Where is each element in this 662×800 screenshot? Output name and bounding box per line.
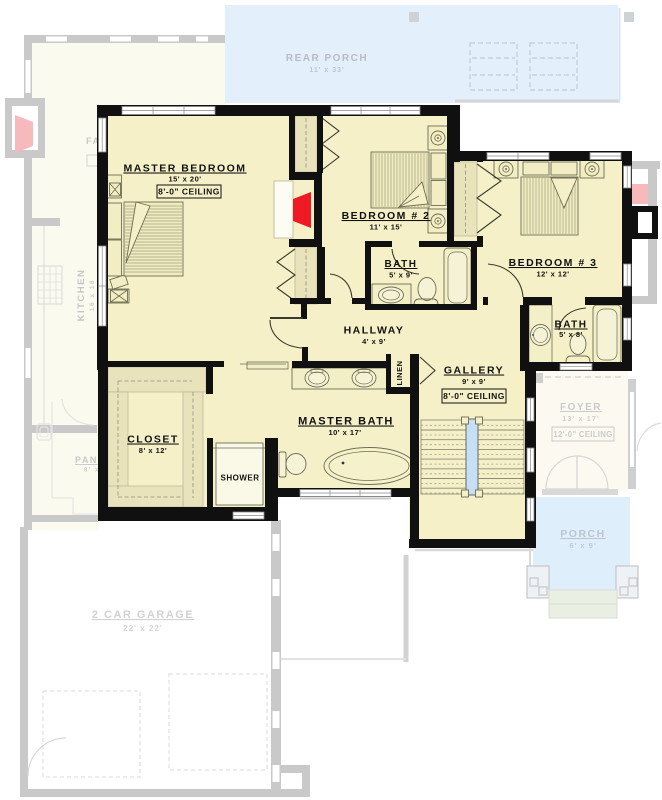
svg-text:CLOSET: CLOSET bbox=[127, 434, 179, 446]
svg-text:LINEN: LINEN bbox=[395, 361, 404, 386]
svg-text:8' x 12': 8' x 12' bbox=[139, 446, 167, 455]
svg-text:11' x 33': 11' x 33' bbox=[309, 67, 344, 74]
svg-text:PAN: PAN bbox=[75, 455, 98, 465]
svg-text:8'-0" CEILING: 8'-0" CEILING bbox=[443, 391, 505, 401]
svg-text:16 x 18: 16 x 18 bbox=[89, 279, 96, 311]
svg-text:KITCHEN: KITCHEN bbox=[76, 269, 87, 322]
svg-text:15' x 20': 15' x 20' bbox=[168, 175, 201, 184]
svg-text:12' x 12': 12' x 12' bbox=[536, 270, 569, 279]
svg-text:12'-0" CEILING: 12'-0" CEILING bbox=[553, 430, 612, 439]
svg-text:BEDROOM # 3: BEDROOM # 3 bbox=[509, 257, 598, 269]
svg-text:8'-0" CEILING: 8'-0" CEILING bbox=[158, 187, 220, 197]
svg-text:GALLERY: GALLERY bbox=[444, 365, 504, 377]
svg-text:REAR PORCH: REAR PORCH bbox=[286, 53, 368, 64]
svg-text:MASTER BATH: MASTER BATH bbox=[298, 416, 394, 428]
svg-text:9' x 9': 9' x 9' bbox=[462, 377, 486, 386]
svg-text:BATH: BATH bbox=[554, 320, 587, 331]
svg-text:8' x: 8' x bbox=[84, 468, 100, 474]
svg-text:2 CAR GARAGE: 2 CAR GARAGE bbox=[92, 609, 194, 621]
svg-text:SHOWER: SHOWER bbox=[221, 474, 260, 483]
svg-text:10' x 17': 10' x 17' bbox=[328, 428, 361, 437]
svg-text:13' x 17': 13' x 17' bbox=[562, 414, 600, 423]
svg-text:11' x 15': 11' x 15' bbox=[370, 223, 403, 232]
svg-text:6' x 9': 6' x 9' bbox=[569, 541, 596, 550]
svg-text:5' x 8': 5' x 8' bbox=[559, 330, 583, 339]
svg-text:BATH: BATH bbox=[384, 259, 417, 270]
svg-text:HALLWAY: HALLWAY bbox=[344, 325, 405, 337]
svg-text:MASTER BEDROOM: MASTER BEDROOM bbox=[123, 163, 246, 175]
svg-text:5' x 9': 5' x 9' bbox=[389, 271, 413, 280]
svg-text:22' x 22': 22' x 22' bbox=[123, 624, 163, 633]
svg-text:BEDROOM # 2: BEDROOM # 2 bbox=[342, 210, 431, 222]
svg-text:PORCH: PORCH bbox=[560, 528, 605, 540]
svg-text:FOYER: FOYER bbox=[560, 402, 602, 413]
svg-text:4' x 9': 4' x 9' bbox=[362, 337, 386, 346]
